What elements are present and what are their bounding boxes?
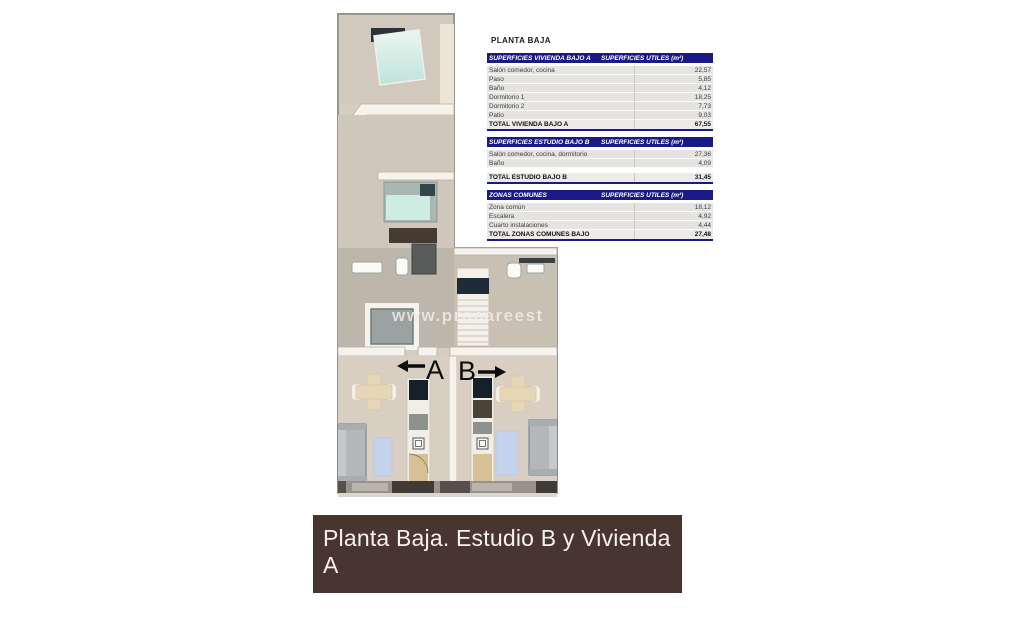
kitchen-b xyxy=(471,376,494,484)
row-label: Escalera xyxy=(487,213,634,220)
table-row: Dormitorio 118,25 xyxy=(487,93,713,102)
table-row: Baño4,12 xyxy=(487,84,713,93)
table-row: Dormitorio 27,73 xyxy=(487,102,713,111)
row-value: 27,36 xyxy=(634,150,713,158)
sink-b xyxy=(527,264,544,273)
row-label: Dormitorio 1 xyxy=(487,94,634,101)
toilet-b xyxy=(507,263,521,278)
total-label: TOTAL ZONAS COMUNES BAJO xyxy=(487,231,634,238)
row-value: 4,12 xyxy=(634,84,713,92)
table-body: Salón comedor, cocina22,57Paso5,85Baño4,… xyxy=(487,66,713,131)
table-estudio-bajo-b: SUPERFICIES ESTUDIO BAJO BSUPERFICIES UT… xyxy=(487,137,713,184)
row-value: 4,92 xyxy=(634,212,713,220)
sink xyxy=(352,262,382,273)
sofa-b xyxy=(529,420,557,475)
wall-column xyxy=(440,24,454,104)
table-row: Cuarto instalaciones4,44 xyxy=(487,221,713,230)
patio-zone xyxy=(340,16,454,104)
row-label: Cuarto instalaciones xyxy=(487,222,634,229)
total-value: 67,55 xyxy=(634,120,713,129)
row-value: 18,25 xyxy=(634,93,713,101)
table-header-units: SUPERFICIES UTILES (m²) xyxy=(601,55,713,62)
radiator xyxy=(519,258,555,263)
table-header-units: SUPERFICIES UTILES (m²) xyxy=(601,192,713,199)
table-zonas-comunes: ZONAS COMUNESSUPERFICIES UTILES (m²)Zona… xyxy=(487,190,713,241)
row-value: 7,73 xyxy=(634,102,713,110)
area-tables-panel: PLANTA BAJA SUPERFICIES VIVIENDA BAJO AS… xyxy=(487,36,713,247)
total-value: 27,48 xyxy=(634,230,713,239)
table-header-title: SUPERFICIES VIVIENDA BAJO A xyxy=(487,55,601,62)
total-label: TOTAL ESTUDIO BAJO B xyxy=(487,174,634,181)
table-row: Patio9,03 xyxy=(487,111,713,120)
glass-panel xyxy=(374,30,425,85)
caption-text: Planta Baja. Estudio B y Vivienda A xyxy=(313,515,682,579)
table-row: Salón comedor, cocina, dormitorio27,36 xyxy=(487,150,713,159)
row-label: Dormitorio 2 xyxy=(487,103,634,110)
row-label: Salón comedor, cocina xyxy=(487,67,634,74)
total-label: TOTAL VIVIENDA BAJO A xyxy=(487,121,634,128)
row-value: 18,12 xyxy=(634,203,713,211)
table-header: SUPERFICIES ESTUDIO BAJO BSUPERFICIES UT… xyxy=(487,137,713,147)
shower xyxy=(412,244,436,274)
row-value: 9,03 xyxy=(634,111,713,119)
table-row: Zona común18,12 xyxy=(487,203,713,212)
table-total-row: TOTAL ESTUDIO BAJO B31,45 xyxy=(487,173,713,184)
row-value: 5,85 xyxy=(634,75,713,83)
kitchen-a xyxy=(407,378,430,492)
page-title: PLANTA BAJA xyxy=(491,36,713,45)
table-total-row: TOTAL VIVIENDA BAJO A67,55 xyxy=(487,120,713,131)
bed xyxy=(384,182,437,222)
courtyard xyxy=(365,303,419,350)
table-header: ZONAS COMUNESSUPERFICIES UTILES (m²) xyxy=(487,190,713,200)
table-header-title: SUPERFICIES ESTUDIO BAJO B xyxy=(487,139,601,146)
row-label: Baño xyxy=(487,160,634,167)
table-header: SUPERFICIES VIVIENDA BAJO ASUPERFICIES U… xyxy=(487,53,713,63)
table-header-units: SUPERFICIES UTILES (m²) xyxy=(601,139,713,146)
facade-wall xyxy=(338,481,557,497)
extension-zone xyxy=(454,248,557,348)
table-vivienda-bajo-a: SUPERFICIES VIVIENDA BAJO ASUPERFICIES U… xyxy=(487,53,713,131)
table-row: Paso5,85 xyxy=(487,75,713,84)
caption-banner: Planta Baja. Estudio B y Vivienda A xyxy=(313,515,682,593)
table-header-title: ZONAS COMUNES xyxy=(487,192,601,199)
row-label: Patio xyxy=(487,112,634,119)
row-value: 4,44 xyxy=(634,221,713,229)
row-value: 4,09 xyxy=(634,159,713,167)
sofa-a xyxy=(338,424,366,482)
bedroom-zone xyxy=(338,115,454,248)
wardrobe xyxy=(389,228,437,243)
row-label: Salón comedor, cocina, dormitorio xyxy=(487,151,634,158)
table-row: Salón comedor, cocina22,57 xyxy=(487,66,713,75)
row-label: Baño xyxy=(487,85,634,92)
table-body: Salón comedor, cocina, dormitorio27,36Ba… xyxy=(487,150,713,184)
unit-b-label: B xyxy=(458,356,476,386)
rug-b xyxy=(496,431,518,475)
rug-a xyxy=(374,438,392,476)
table-total-row: TOTAL ZONAS COMUNES BAJO27,48 xyxy=(487,230,713,241)
table-body: Zona común18,12Escalera4,92Cuarto instal… xyxy=(487,203,713,241)
total-value: 31,45 xyxy=(634,173,713,182)
unit-a-label: A xyxy=(426,355,444,385)
row-label: Zona común xyxy=(487,204,634,211)
table-row: Baño4,09 xyxy=(487,159,713,168)
stairs xyxy=(457,268,489,346)
page: A B www.procareest PLANTA BAJA SUPERFICI… xyxy=(0,0,1024,640)
table-row: Escalera4,92 xyxy=(487,212,713,221)
row-label: Paso xyxy=(487,76,634,83)
toilet xyxy=(396,258,408,275)
row-value: 22,57 xyxy=(634,66,713,74)
